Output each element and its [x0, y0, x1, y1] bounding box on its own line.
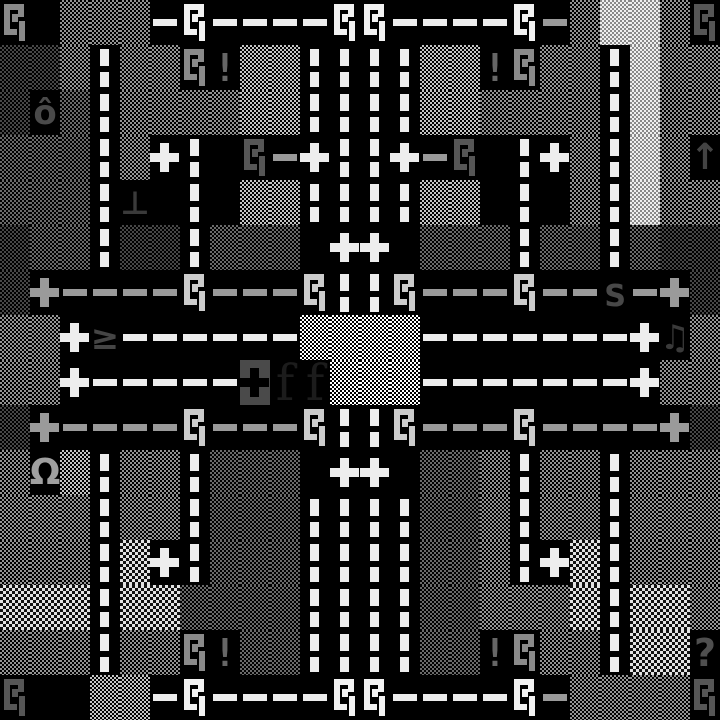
road-curve-icon	[510, 630, 540, 675]
road-horizontal-gray	[420, 135, 450, 180]
glyph-up-arrow: ↑	[690, 135, 720, 180]
lane-dash	[153, 379, 177, 386]
road-horizontal-gray	[120, 270, 150, 315]
field-checker-mid	[30, 540, 60, 585]
lane-dash	[370, 162, 379, 177]
glyph-greater-equal: ≥	[90, 315, 120, 360]
lane-dash	[190, 477, 199, 492]
field-checker-light	[450, 90, 480, 135]
cross-bar	[150, 153, 179, 162]
lane-dash	[543, 334, 567, 341]
lane-dash	[243, 334, 267, 341]
lane-dash	[100, 49, 109, 66]
field-checker-dim	[450, 450, 480, 495]
road-horizontal	[480, 360, 510, 405]
lane-dash	[310, 184, 319, 201]
field-checker-dim	[420, 585, 450, 630]
crossing-block-icon	[240, 360, 270, 405]
game-screen: !!ô↑⊥s≥♫ffΩ!!?	[0, 0, 720, 720]
lane-dash	[543, 19, 567, 26]
lane-dash	[190, 207, 199, 222]
field-checker-light	[450, 180, 480, 225]
road-horizontal	[480, 0, 510, 45]
lane-dash	[610, 634, 619, 651]
road-vertical	[90, 450, 120, 495]
field-checker-dim	[420, 225, 450, 270]
lane-dash	[400, 117, 409, 132]
field-checker-mid	[570, 0, 600, 45]
field-checker-mid	[570, 630, 600, 675]
lane-dash	[520, 184, 529, 201]
lane-dash	[423, 289, 447, 296]
glyph-up-arrow-char: ↑	[690, 140, 720, 176]
lane-dash	[453, 379, 477, 386]
cross-bar	[240, 378, 269, 387]
lane-dash	[340, 612, 349, 627]
road-curve-icon	[510, 675, 540, 720]
glyph-o-circumflex: ô	[30, 90, 60, 135]
road-horizontal	[210, 315, 240, 360]
lane-dash	[340, 522, 349, 537]
road-vertical	[90, 135, 120, 180]
lane-dash	[543, 289, 567, 296]
field-checker-pale	[630, 90, 660, 135]
lane-dash	[183, 334, 207, 341]
lane-dash	[610, 252, 619, 267]
field-checker-mid	[30, 495, 60, 540]
road-curve-icon	[360, 675, 390, 720]
lane-dash	[190, 139, 199, 156]
field-checker-light	[270, 45, 300, 90]
road-horizontal-gray	[450, 270, 480, 315]
field-checker-mid	[570, 90, 600, 135]
road-intersection-gray-icon	[660, 270, 690, 315]
lane-dash	[610, 477, 619, 492]
lane-dash	[483, 424, 507, 431]
field-checker-light	[240, 90, 270, 135]
field-checker-mid	[570, 495, 600, 540]
lane-dash	[340, 94, 349, 111]
road-horizontal	[240, 0, 270, 45]
field-checker-dim	[240, 540, 270, 585]
lane-dash	[423, 19, 447, 26]
road-curve-icon	[390, 270, 420, 315]
road-vertical	[510, 180, 540, 225]
lane-dash	[340, 274, 349, 291]
field-checker-light	[420, 45, 450, 90]
road-blank	[390, 225, 420, 270]
road-blank	[480, 135, 510, 180]
road-vertical	[300, 540, 330, 585]
lane-dash	[400, 544, 409, 561]
field-checker-mid	[690, 360, 720, 405]
lane-dash	[603, 379, 627, 386]
road-vertical	[330, 45, 360, 90]
lane-dash	[100, 94, 109, 111]
lane-dash	[63, 289, 87, 296]
field-checker-mid	[150, 630, 180, 675]
lane-dash	[340, 657, 349, 672]
lane-dash	[370, 94, 379, 111]
lane-dash	[610, 612, 619, 627]
road-intersection-icon	[150, 540, 180, 585]
lane-dash	[610, 139, 619, 156]
road-horizontal	[540, 315, 570, 360]
lane-dash	[483, 379, 507, 386]
road-curve-icon	[510, 45, 540, 90]
field-checker-mid	[60, 540, 90, 585]
lane-dash	[340, 207, 349, 222]
road-horizontal-gray	[210, 270, 240, 315]
lane-dash	[213, 424, 237, 431]
lane-dash	[153, 289, 177, 296]
road-horizontal-gray	[90, 405, 120, 450]
road-horizontal-gray	[630, 270, 660, 315]
field-checker-mid	[660, 360, 690, 405]
road-vertical	[360, 630, 390, 675]
lane-dash	[520, 454, 529, 471]
lane-dash	[543, 379, 567, 386]
lane-dash	[190, 522, 199, 537]
field-checker-dim	[240, 585, 270, 630]
lane-dash	[370, 589, 379, 606]
road-intersection-icon	[540, 135, 570, 180]
lane-dash	[340, 184, 349, 201]
lane-dash	[340, 72, 349, 87]
glyph-exclamation: !	[480, 630, 510, 675]
road-blank	[300, 225, 330, 270]
road-horizontal	[270, 675, 300, 720]
lane-dash	[340, 567, 349, 582]
road-curve-icon	[690, 0, 720, 45]
road-intersection-icon	[300, 135, 330, 180]
glyph-exclamation-char: !	[484, 634, 507, 672]
field-checker-mid	[660, 90, 690, 135]
road-horizontal-gray	[630, 405, 660, 450]
road-vertical	[360, 180, 390, 225]
lane-dash	[310, 72, 319, 87]
lane-dash	[610, 522, 619, 537]
road-vertical	[360, 405, 390, 450]
lane-dash	[400, 499, 409, 516]
field-checker-pale	[630, 0, 660, 45]
lane-dash	[423, 694, 447, 701]
field-checker-light	[90, 675, 120, 720]
field-checker-mid	[120, 90, 150, 135]
field-checker-dim	[60, 135, 90, 180]
field-checker-dim	[60, 180, 90, 225]
lane-dash	[400, 72, 409, 87]
lane-dash	[243, 19, 267, 26]
field-checker-coarse	[120, 540, 150, 585]
road-curve-icon	[690, 675, 720, 720]
field-checker-dim	[30, 225, 60, 270]
road-blank	[480, 180, 510, 225]
road-horizontal	[570, 360, 600, 405]
road-blank	[30, 675, 60, 720]
field-checker-dim	[420, 450, 450, 495]
road-vertical	[600, 135, 630, 180]
road-vertical	[510, 135, 540, 180]
cross-bar	[300, 153, 329, 162]
field-checker-mid	[120, 450, 150, 495]
cross-bar	[660, 288, 689, 297]
lane-dash	[483, 694, 507, 701]
lane-dash	[573, 334, 597, 341]
road-intersection-icon	[360, 225, 390, 270]
road-horizontal-gray	[270, 135, 300, 180]
road-vertical	[180, 135, 210, 180]
road-horizontal	[210, 360, 240, 405]
field-checker-mid	[30, 315, 60, 360]
lane-dash	[100, 207, 109, 222]
lane-dash	[153, 19, 177, 26]
road-horizontal	[150, 360, 180, 405]
overmap-viewport[interactable]: !!ô↑⊥s≥♫ffΩ!!?	[0, 0, 720, 720]
cross-bar	[540, 558, 569, 567]
lane-dash	[100, 657, 109, 672]
road-vertical	[300, 495, 330, 540]
lane-dash	[400, 207, 409, 222]
field-checker-mid	[90, 0, 120, 45]
lane-dash	[370, 274, 379, 291]
field-checker-mid	[120, 45, 150, 90]
lane-dash	[100, 612, 109, 627]
field-checker-mid	[510, 585, 540, 630]
road-vertical	[360, 270, 390, 315]
road-vertical	[90, 45, 120, 90]
road-horizontal-gray	[90, 270, 120, 315]
road-horizontal	[600, 315, 630, 360]
cross-bar	[540, 153, 569, 162]
field-checker-mid	[120, 135, 150, 180]
cross-bar	[30, 288, 59, 297]
road-vertical	[300, 45, 330, 90]
lane-dash	[153, 694, 177, 701]
field-checker-mid	[60, 495, 90, 540]
road-vertical	[330, 90, 360, 135]
lane-dash	[340, 544, 349, 561]
field-checker-mid	[570, 675, 600, 720]
lane-dash	[520, 207, 529, 222]
field-checker-mid	[480, 90, 510, 135]
field-checker-coarse	[630, 630, 660, 675]
road-vertical	[510, 450, 540, 495]
lane-dash	[483, 289, 507, 296]
lane-dash	[310, 589, 319, 606]
lane-dash	[213, 694, 237, 701]
lane-dash	[513, 334, 537, 341]
road-vertical	[300, 585, 330, 630]
lane-dash	[273, 289, 297, 296]
road-horizontal-gray	[480, 405, 510, 450]
field-checker-mid	[540, 495, 570, 540]
road-vertical	[180, 450, 210, 495]
road-curve-icon	[360, 0, 390, 45]
lane-dash	[370, 612, 379, 627]
field-checker-dark	[30, 45, 60, 90]
lane-dash	[303, 694, 327, 701]
field-checker-dark	[0, 270, 30, 315]
lane-dash	[610, 117, 619, 132]
lane-dash	[190, 252, 199, 267]
lane-dash	[273, 694, 297, 701]
road-vertical	[600, 90, 630, 135]
field-checker-dim	[450, 225, 480, 270]
road-vertical	[390, 630, 420, 675]
road-vertical	[300, 180, 330, 225]
lane-dash	[310, 657, 319, 672]
lane-dash	[183, 379, 207, 386]
lane-dash	[213, 334, 237, 341]
lane-dash	[610, 567, 619, 582]
lane-dash	[153, 424, 177, 431]
road-horizontal	[450, 315, 480, 360]
field-checker-white	[330, 360, 360, 405]
lane-dash	[453, 19, 477, 26]
field-checker-dim	[210, 450, 240, 495]
lane-dash	[520, 139, 529, 156]
lane-dash	[610, 162, 619, 177]
road-horizontal	[450, 675, 480, 720]
field-checker-dim	[450, 630, 480, 675]
road-curve-icon	[180, 0, 210, 45]
road-horizontal	[300, 0, 330, 45]
glyph-omega-char: Ω	[30, 455, 61, 491]
lane-dash	[123, 289, 147, 296]
lane-dash	[340, 409, 349, 426]
cross-bar	[60, 333, 89, 342]
lane-dash	[370, 634, 379, 651]
field-checker-pale	[600, 0, 630, 45]
glyph-exclamation-char: !	[214, 634, 237, 672]
lane-dash	[610, 229, 619, 246]
lane-dash	[100, 544, 109, 561]
road-blank	[300, 450, 330, 495]
lane-dash	[190, 499, 199, 516]
road-horizontal-gray	[540, 270, 570, 315]
lane-dash	[213, 379, 237, 386]
road-horizontal	[210, 675, 240, 720]
lane-dash	[520, 162, 529, 177]
lane-dash	[610, 72, 619, 87]
field-checker-dim	[0, 135, 30, 180]
lane-dash	[453, 694, 477, 701]
road-curve-icon	[240, 135, 270, 180]
field-checker-dim	[210, 225, 240, 270]
lane-dash	[483, 19, 507, 26]
road-horizontal	[420, 675, 450, 720]
field-checker-dim	[30, 135, 60, 180]
road-vertical	[90, 180, 120, 225]
lane-dash	[93, 424, 117, 431]
road-horizontal	[510, 315, 540, 360]
field-checker-light	[270, 180, 300, 225]
lane-dash	[190, 184, 199, 201]
field-checker-dark	[0, 225, 30, 270]
lane-dash	[370, 184, 379, 201]
field-checker-mid	[180, 90, 210, 135]
road-blank	[390, 450, 420, 495]
lane-dash	[213, 289, 237, 296]
lane-dash	[573, 289, 597, 296]
lane-dash	[153, 334, 177, 341]
road-horizontal	[150, 0, 180, 45]
glyph-f-serif-char: f	[276, 358, 295, 408]
road-horizontal	[390, 675, 420, 720]
lane-dash	[190, 454, 199, 471]
lane-dash	[453, 289, 477, 296]
road-horizontal	[420, 0, 450, 45]
lane-dash	[393, 19, 417, 26]
field-checker-mid	[570, 135, 600, 180]
lane-dash	[190, 567, 199, 582]
road-intersection-icon	[60, 360, 90, 405]
field-checker-mid	[690, 90, 720, 135]
road-horizontal	[300, 675, 330, 720]
road-horizontal-gray	[540, 405, 570, 450]
field-checker-mid	[0, 630, 30, 675]
road-blank	[210, 135, 240, 180]
road-curve-icon	[180, 630, 210, 675]
road-horizontal-gray	[480, 270, 510, 315]
road-curve-icon	[180, 405, 210, 450]
field-checker-mid	[690, 495, 720, 540]
road-vertical	[330, 180, 360, 225]
road-horizontal-gray	[570, 405, 600, 450]
glyph-up-tack-char: ⊥	[120, 187, 149, 219]
road-vertical	[390, 585, 420, 630]
road-vertical	[600, 225, 630, 270]
lane-dash	[400, 657, 409, 672]
lane-dash	[243, 694, 267, 701]
glyph-exclamation: !	[210, 630, 240, 675]
field-checker-mid	[690, 585, 720, 630]
lane-dash	[100, 567, 109, 582]
lane-dash	[123, 379, 147, 386]
lane-dash	[340, 139, 349, 156]
road-horizontal-gray	[270, 270, 300, 315]
field-checker-coarse	[660, 630, 690, 675]
field-checker-light	[420, 90, 450, 135]
glyph-greater-equal-char: ≥	[91, 321, 120, 355]
lane-dash	[100, 184, 109, 201]
road-curve-icon	[0, 0, 30, 45]
glyph-s-char: s	[603, 273, 627, 313]
lane-dash	[340, 117, 349, 132]
glyph-omega: Ω	[30, 450, 60, 495]
lane-dash	[340, 432, 349, 447]
field-checker-mid	[150, 495, 180, 540]
road-horizontal-gray	[240, 270, 270, 315]
road-intersection-icon	[360, 450, 390, 495]
field-checker-dark	[150, 225, 180, 270]
field-checker-mid	[150, 450, 180, 495]
field-checker-dim	[450, 585, 480, 630]
road-curve-icon	[390, 405, 420, 450]
road-intersection-icon	[330, 450, 360, 495]
road-vertical	[300, 630, 330, 675]
road-vertical	[360, 495, 390, 540]
field-checker-mid	[660, 180, 690, 225]
field-checker-white	[360, 360, 390, 405]
road-vertical	[390, 90, 420, 135]
road-vertical	[600, 495, 630, 540]
lane-dash	[370, 432, 379, 447]
road-vertical	[180, 540, 210, 585]
road-horizontal-gray	[420, 270, 450, 315]
lane-dash	[400, 184, 409, 201]
